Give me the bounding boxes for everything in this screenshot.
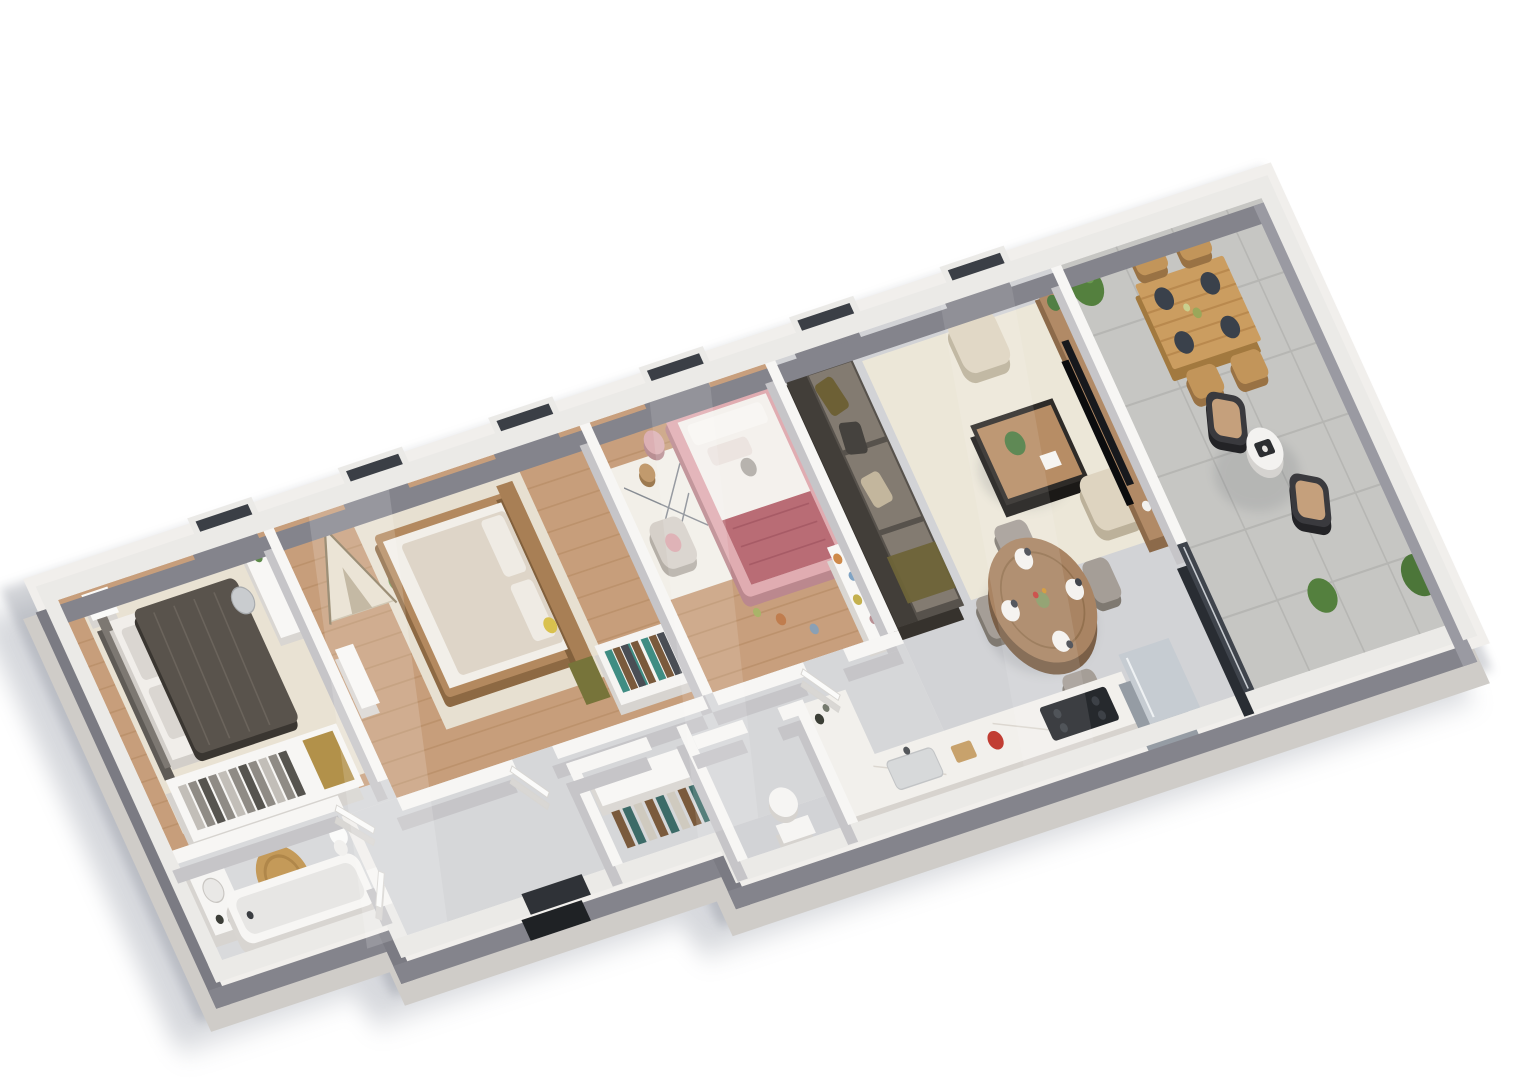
apartment-3d-floorplan [0,0,1526,1080]
floorplan-stage [0,0,1526,1080]
scene-root [0,162,1493,1080]
